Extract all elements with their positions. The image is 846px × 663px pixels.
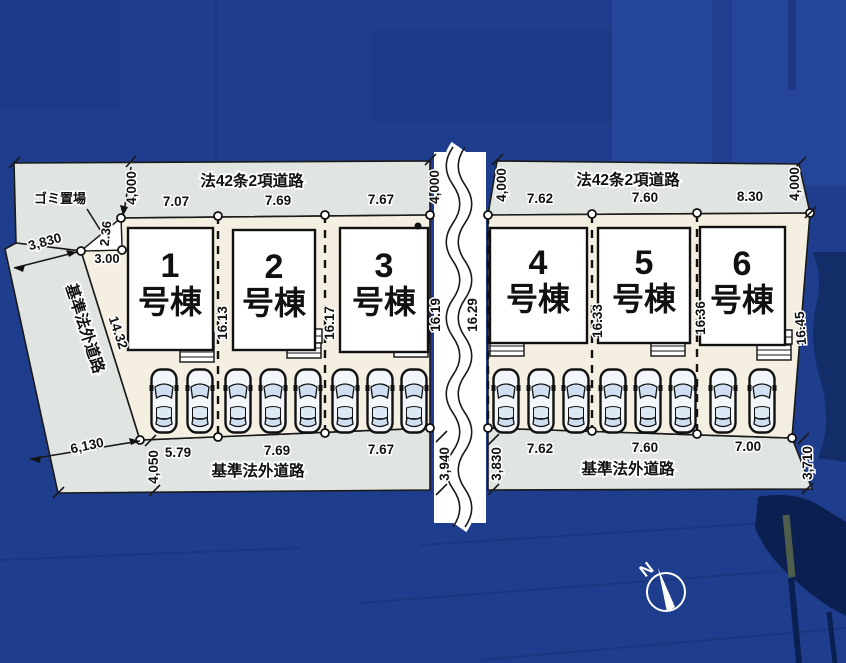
building-4-number: 4 bbox=[529, 244, 548, 282]
car-icon bbox=[186, 370, 215, 433]
dim-4000-a: 4,000 bbox=[124, 171, 139, 205]
dim-top-lot5: 7.60 bbox=[632, 190, 658, 205]
car-icon bbox=[224, 370, 253, 433]
car-icon bbox=[492, 370, 521, 433]
dim-3830-right: 3,830 bbox=[489, 447, 504, 481]
car-icon bbox=[331, 370, 360, 433]
site-plan-page: 1 号棟 2 号棟 3 号棟 4 号棟 5 号棟 6 号棟 bbox=[0, 0, 846, 663]
utility-pole-marker bbox=[415, 223, 422, 230]
dim-depth-1613: 16.13 bbox=[215, 306, 230, 340]
car-icon bbox=[748, 370, 777, 433]
dim-4000-b: 4,000 bbox=[427, 170, 442, 204]
garbage-dim-b: 3.00 bbox=[94, 251, 119, 266]
dim-depth-1636: 16.36 bbox=[693, 301, 708, 335]
building-6-suffix: 号棟 bbox=[710, 282, 775, 318]
building-1-number: 1 bbox=[161, 247, 180, 285]
dim-depth-1645: 16.45 bbox=[792, 310, 809, 345]
road-name-top-right: 法42条2項道路 bbox=[576, 170, 680, 189]
building-6-number: 6 bbox=[733, 245, 752, 283]
dim-depth-1629: 16.29 bbox=[465, 298, 480, 332]
building-2-number: 2 bbox=[265, 248, 284, 286]
car-icon bbox=[366, 370, 395, 433]
dim-top-lot1: 7.07 bbox=[163, 194, 189, 209]
car-icon bbox=[294, 370, 323, 433]
dim-3940: 3,940 bbox=[437, 447, 452, 481]
building-3: 3 号棟 bbox=[340, 228, 428, 352]
dim-depth-1617: 16.17 bbox=[322, 306, 337, 340]
dim-3710: 3,710 bbox=[800, 446, 815, 480]
dim-bottom-lot5: 7.60 bbox=[632, 440, 658, 455]
dim-bottom-lot6: 7.00 bbox=[735, 439, 761, 454]
dim-bottom-lot3: 7.67 bbox=[368, 442, 394, 457]
building-3-number: 3 bbox=[375, 247, 394, 285]
site-plan-canvas: 1 号棟 2 号棟 3 号棟 4 号棟 5 号棟 6 号棟 bbox=[0, 0, 846, 663]
car-icon bbox=[599, 370, 628, 433]
building-4: 4 号棟 bbox=[490, 228, 587, 343]
car-icon bbox=[259, 370, 288, 433]
car-icon bbox=[562, 370, 591, 433]
dim-top-lot2: 7.69 bbox=[265, 193, 291, 208]
garbage-dim-a: 2.36 bbox=[97, 220, 115, 247]
car-icon bbox=[634, 370, 663, 433]
dim-depth-1633: 16.33 bbox=[590, 304, 605, 338]
dim-4050: 4,050 bbox=[146, 450, 161, 484]
road-name-bottom-right: 基準法外道路 bbox=[580, 459, 675, 478]
road-name-top-left: 法42条2項道路 bbox=[200, 171, 304, 190]
dim-bottom-lot2: 7.69 bbox=[264, 443, 290, 458]
building-5: 5 号棟 bbox=[598, 228, 690, 343]
building-2-suffix: 号棟 bbox=[242, 285, 307, 321]
dim-top-lot6: 8.30 bbox=[737, 189, 763, 204]
dim-bottom-lot4: 7.62 bbox=[527, 441, 553, 456]
building-1-suffix: 号棟 bbox=[138, 284, 203, 320]
building-3-suffix: 号棟 bbox=[352, 284, 417, 320]
dim-4000-c: 4,000 bbox=[494, 168, 509, 202]
car-icon bbox=[709, 370, 738, 433]
car-icon bbox=[669, 370, 698, 433]
car-icon bbox=[400, 370, 429, 433]
building-4-suffix: 号棟 bbox=[506, 281, 571, 317]
dim-depth-1619: 16.19 bbox=[428, 298, 443, 332]
car-icon bbox=[150, 370, 179, 433]
building-5-suffix: 号棟 bbox=[612, 281, 677, 317]
garbage-label: ゴミ置場 bbox=[34, 191, 86, 206]
building-1: 1 号棟 bbox=[128, 228, 213, 350]
dim-4000-d: 4,000 bbox=[787, 167, 802, 201]
building-5-number: 5 bbox=[635, 244, 654, 282]
dim-top-lot3: 7.67 bbox=[368, 192, 394, 207]
building-2: 2 号棟 bbox=[233, 230, 315, 350]
road-name-bottom-left: 基準法外道路 bbox=[210, 461, 305, 480]
building-6: 6 号棟 bbox=[700, 227, 785, 345]
dim-top-lot4: 7.62 bbox=[527, 191, 553, 206]
car-icon bbox=[527, 370, 556, 433]
dim-bottom-lot1: 5.79 bbox=[165, 445, 191, 460]
